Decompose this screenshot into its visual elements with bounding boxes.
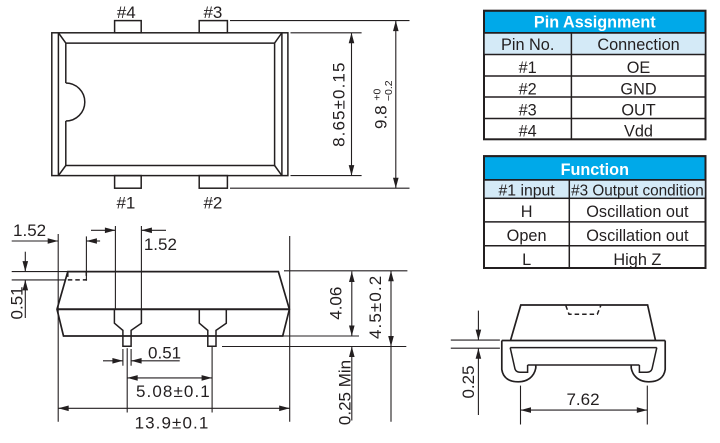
svg-text:Pin Assignment: Pin Assignment — [534, 14, 656, 32]
svg-text:5.08±0.1: 5.08±0.1 — [136, 382, 211, 401]
svg-text:#1: #1 — [519, 59, 537, 77]
svg-text:Connection: Connection — [597, 36, 679, 54]
svg-text:#3: #3 — [203, 3, 222, 22]
svg-text:L: L — [522, 251, 531, 269]
svg-text:9.8 +0−0.2: 9.8 +0−0.2 — [372, 80, 396, 129]
svg-text:13.9±0.1: 13.9±0.1 — [135, 413, 210, 432]
svg-text:1.52: 1.52 — [144, 235, 177, 254]
svg-text:#3 Output condition: #3 Output condition — [571, 182, 704, 199]
svg-text:Function: Function — [561, 161, 629, 179]
svg-text:GND: GND — [620, 80, 656, 98]
svg-text:4.5±0.2: 4.5±0.2 — [366, 275, 385, 339]
svg-text:8.65±0.15: 8.65±0.15 — [330, 61, 349, 146]
svg-text:H: H — [521, 203, 533, 221]
svg-text:OUT: OUT — [621, 101, 655, 119]
svg-text:#3: #3 — [519, 101, 537, 119]
svg-text:0.25 Min: 0.25 Min — [336, 360, 355, 425]
svg-text:1.52: 1.52 — [13, 221, 46, 240]
svg-text:Open: Open — [507, 227, 547, 245]
svg-text:#4: #4 — [519, 123, 537, 141]
svg-text:#1 input: #1 input — [498, 182, 555, 199]
svg-text:OE: OE — [627, 59, 651, 77]
svg-text:Vdd: Vdd — [624, 123, 653, 141]
svg-text:#4: #4 — [117, 3, 136, 22]
svg-text:Oscillation out: Oscillation out — [586, 227, 689, 245]
svg-text:Oscillation out: Oscillation out — [586, 203, 689, 221]
svg-text:7.62: 7.62 — [566, 390, 599, 409]
svg-text:High Z: High Z — [613, 251, 661, 269]
svg-text:#2: #2 — [203, 194, 222, 213]
svg-text:Pin No.: Pin No. — [501, 36, 554, 54]
svg-text:0.25: 0.25 — [459, 365, 478, 398]
svg-text:0.51: 0.51 — [8, 286, 27, 319]
svg-text:#2: #2 — [519, 80, 537, 98]
svg-text:0.51: 0.51 — [148, 344, 181, 363]
svg-text:#1: #1 — [116, 194, 135, 213]
svg-text:4.06: 4.06 — [327, 287, 346, 320]
